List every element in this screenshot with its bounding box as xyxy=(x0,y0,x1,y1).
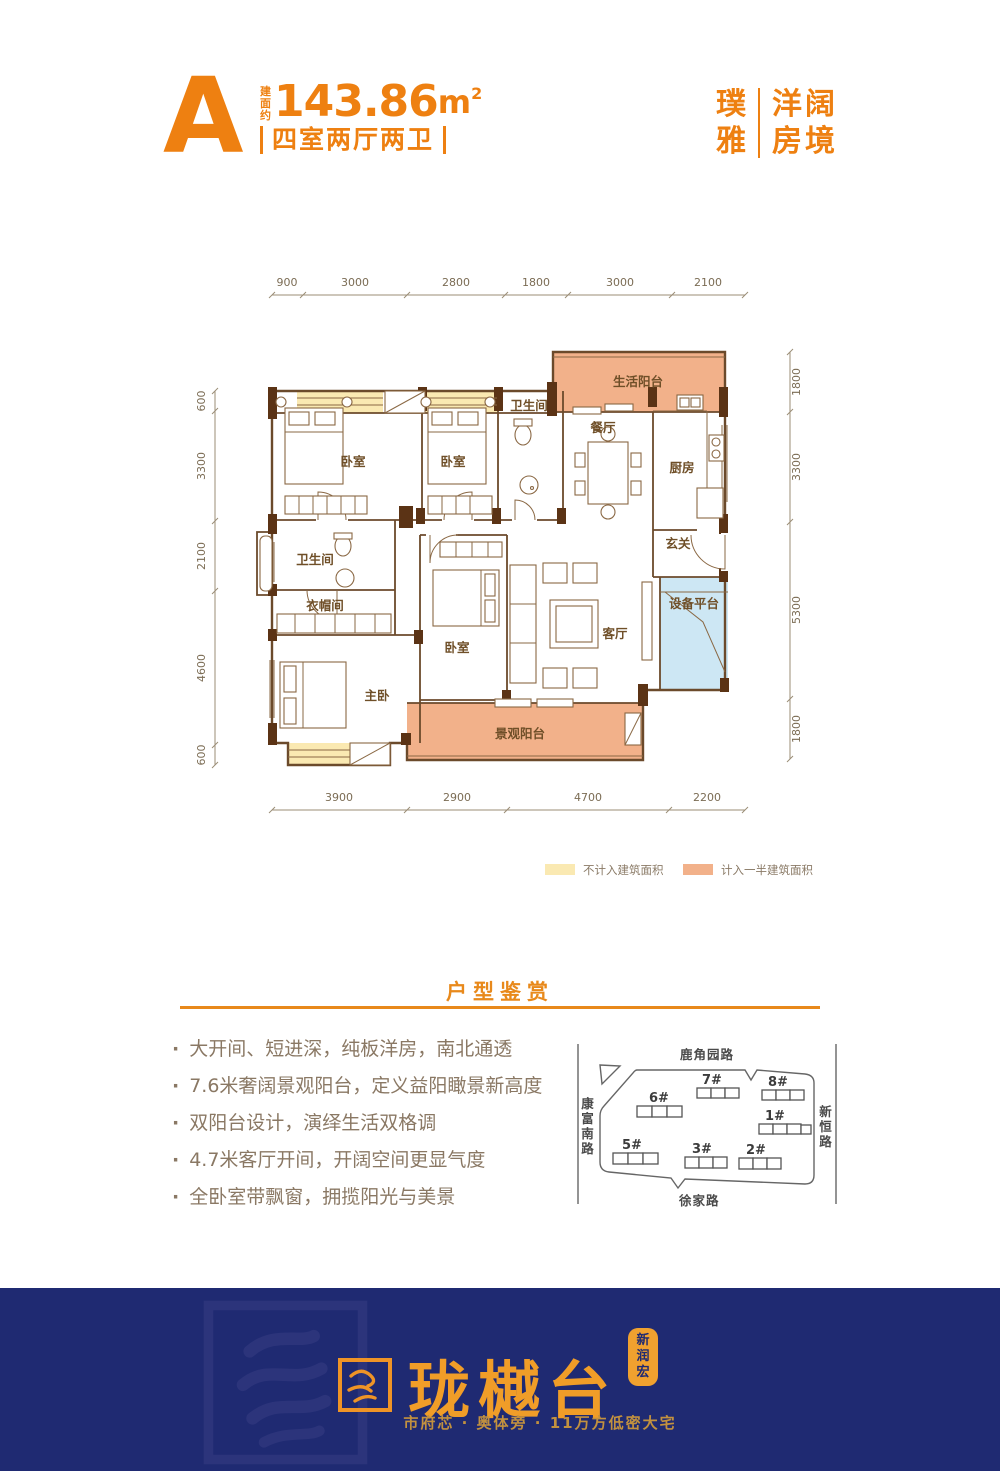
building-1: 1# xyxy=(759,1109,811,1134)
area-value: 143.86 xyxy=(274,80,438,124)
dim-label: 2800 xyxy=(442,276,470,289)
dim-label: 1800 xyxy=(790,368,803,396)
room-label-bedroom1: 卧室 xyxy=(340,454,366,469)
feature-item: 双阳台设计，演绎生活双格调 xyxy=(172,1112,582,1135)
flyer-page: A 建面约 143.86 m2 四室两厅两卫 璞 雅 洋阔 房境 xyxy=(0,0,1000,1471)
room-label-life-balcony: 生活阳台 xyxy=(613,374,663,389)
building-5: 5# xyxy=(613,1138,658,1164)
road-label-left: 康富南路 xyxy=(581,1096,595,1156)
dim-label: 3000 xyxy=(341,276,369,289)
dim-label: 4600 xyxy=(195,654,208,682)
dim-label: 2100 xyxy=(694,276,722,289)
legend-swatch-orange xyxy=(683,864,713,875)
building-2: 2# xyxy=(739,1143,781,1169)
building-6: 6# xyxy=(637,1091,682,1117)
room-label-bedroom2: 卧室 xyxy=(440,454,466,469)
brand-col1: 璞 雅 xyxy=(716,86,746,160)
building-label: 2# xyxy=(746,1143,766,1158)
room-label-living: 客厅 xyxy=(601,626,628,641)
equipment-area xyxy=(660,577,728,690)
dim-label: 2100 xyxy=(195,542,208,570)
legend-label: 计入一半建筑面积 xyxy=(721,863,813,877)
building-label: 5# xyxy=(622,1138,642,1153)
feature-item: 大开间、短进深，纯板洋房，南北通透 xyxy=(172,1038,582,1061)
section-title: 户型鉴赏 xyxy=(0,976,1000,1006)
area-row: 建面约 143.86 m2 xyxy=(260,80,482,124)
developer-seal-text: 新润宏 xyxy=(636,1333,651,1381)
area-prefix: 建面约 xyxy=(260,86,273,122)
building-label: 7# xyxy=(702,1073,722,1088)
section-rule xyxy=(180,1006,820,1009)
room-label-bath2: 卫生间 xyxy=(296,552,334,567)
brand-col2: 洋阔 房境 xyxy=(772,86,838,160)
dim-label: 3300 xyxy=(195,452,208,480)
feature-item: 4.7米客厅开间，开阔空间更显气度 xyxy=(172,1149,582,1172)
dim-label: 3300 xyxy=(790,453,803,481)
site-map: 7# 8# 6# 1# 5# 3# xyxy=(575,1032,839,1217)
dim-label: 2200 xyxy=(693,791,721,804)
legend-swatch-yellow xyxy=(545,864,575,875)
room-label-equipment: 设备平台 xyxy=(669,596,719,611)
area-unit: m2 xyxy=(438,86,482,118)
dim-label: 4700 xyxy=(574,791,602,804)
dim-label: 3900 xyxy=(325,791,353,804)
unit-type-letter: A xyxy=(163,64,244,168)
building-label: 8# xyxy=(768,1075,788,1090)
brand-char-2: 雅 xyxy=(716,123,746,160)
feature-list: 大开间、短进深，纯板洋房，南北通透 7.6米奢阔景观阳台，定义益阳瞰景新高度 双… xyxy=(172,1038,582,1223)
dim-label: 3000 xyxy=(606,276,634,289)
brand-slogan: 璞 雅 洋阔 房境 xyxy=(716,86,838,160)
footer-tagline: 市府芯 · 奥体旁 · 11万方低密大宅 xyxy=(360,1412,720,1433)
road-label-top: 鹿角园路 xyxy=(680,1044,734,1063)
bay-window-area xyxy=(288,743,350,765)
dim-label: 900 xyxy=(277,276,298,289)
dim-label: 5300 xyxy=(790,596,803,624)
brand-word-1: 洋阔 xyxy=(772,86,838,123)
brand-divider xyxy=(758,88,760,158)
dim-label: 1800 xyxy=(522,276,550,289)
dim-label: 600 xyxy=(195,391,208,412)
area-sup: 2 xyxy=(471,84,482,103)
building-label: 3# xyxy=(692,1142,712,1157)
dim-label: 1800 xyxy=(790,715,803,743)
building-label: 6# xyxy=(649,1091,669,1106)
road-label-bottom: 徐家路 xyxy=(679,1190,720,1209)
room-label-foyer: 玄关 xyxy=(665,536,691,551)
brand-word-2: 房境 xyxy=(772,123,838,160)
building-8: 8# xyxy=(762,1075,804,1100)
legend-label: 不计入建筑面积 xyxy=(583,863,664,877)
room-label-bedroom3: 卧室 xyxy=(444,640,470,655)
dim-label: 600 xyxy=(195,745,208,766)
developer-seal: 新润宏 xyxy=(628,1328,658,1386)
footer: 珑樾台 新润宏 市府芯 · 奥体旁 · 11万方低密大宅 xyxy=(0,1288,1000,1471)
brand-seal-icon xyxy=(336,1356,394,1414)
room-label-kitchen: 厨房 xyxy=(669,460,694,475)
brand-char-1: 璞 xyxy=(716,86,746,123)
room-label-cloakroom: 衣帽间 xyxy=(306,598,344,613)
room-label-master: 主卧 xyxy=(364,688,390,703)
road-label-right: 新恒路 xyxy=(819,1104,833,1149)
room-label-bath1: 卫生间 xyxy=(510,398,548,413)
room-label-view-balcony: 景观阳台 xyxy=(495,726,545,741)
building-3: 3# xyxy=(685,1142,727,1168)
floorplan-drawing: 900 3000 2800 1800 3000 2100 3900 2900 4… xyxy=(185,270,845,890)
dim-label: 2900 xyxy=(443,791,471,804)
floorplan-legend: 不计入建筑面积 计入一半建筑面积 xyxy=(545,863,813,877)
building-7: 7# xyxy=(697,1073,739,1098)
building-label: 1# xyxy=(765,1109,785,1124)
layout-summary: 四室两厅两卫 xyxy=(260,126,446,154)
feature-item: 7.6米奢阔景观阳台，定义益阳瞰景新高度 xyxy=(172,1075,582,1098)
room-label-dining: 餐厅 xyxy=(589,420,616,435)
feature-item: 全卧室带飘窗，拥揽阳光与美景 xyxy=(172,1186,582,1209)
